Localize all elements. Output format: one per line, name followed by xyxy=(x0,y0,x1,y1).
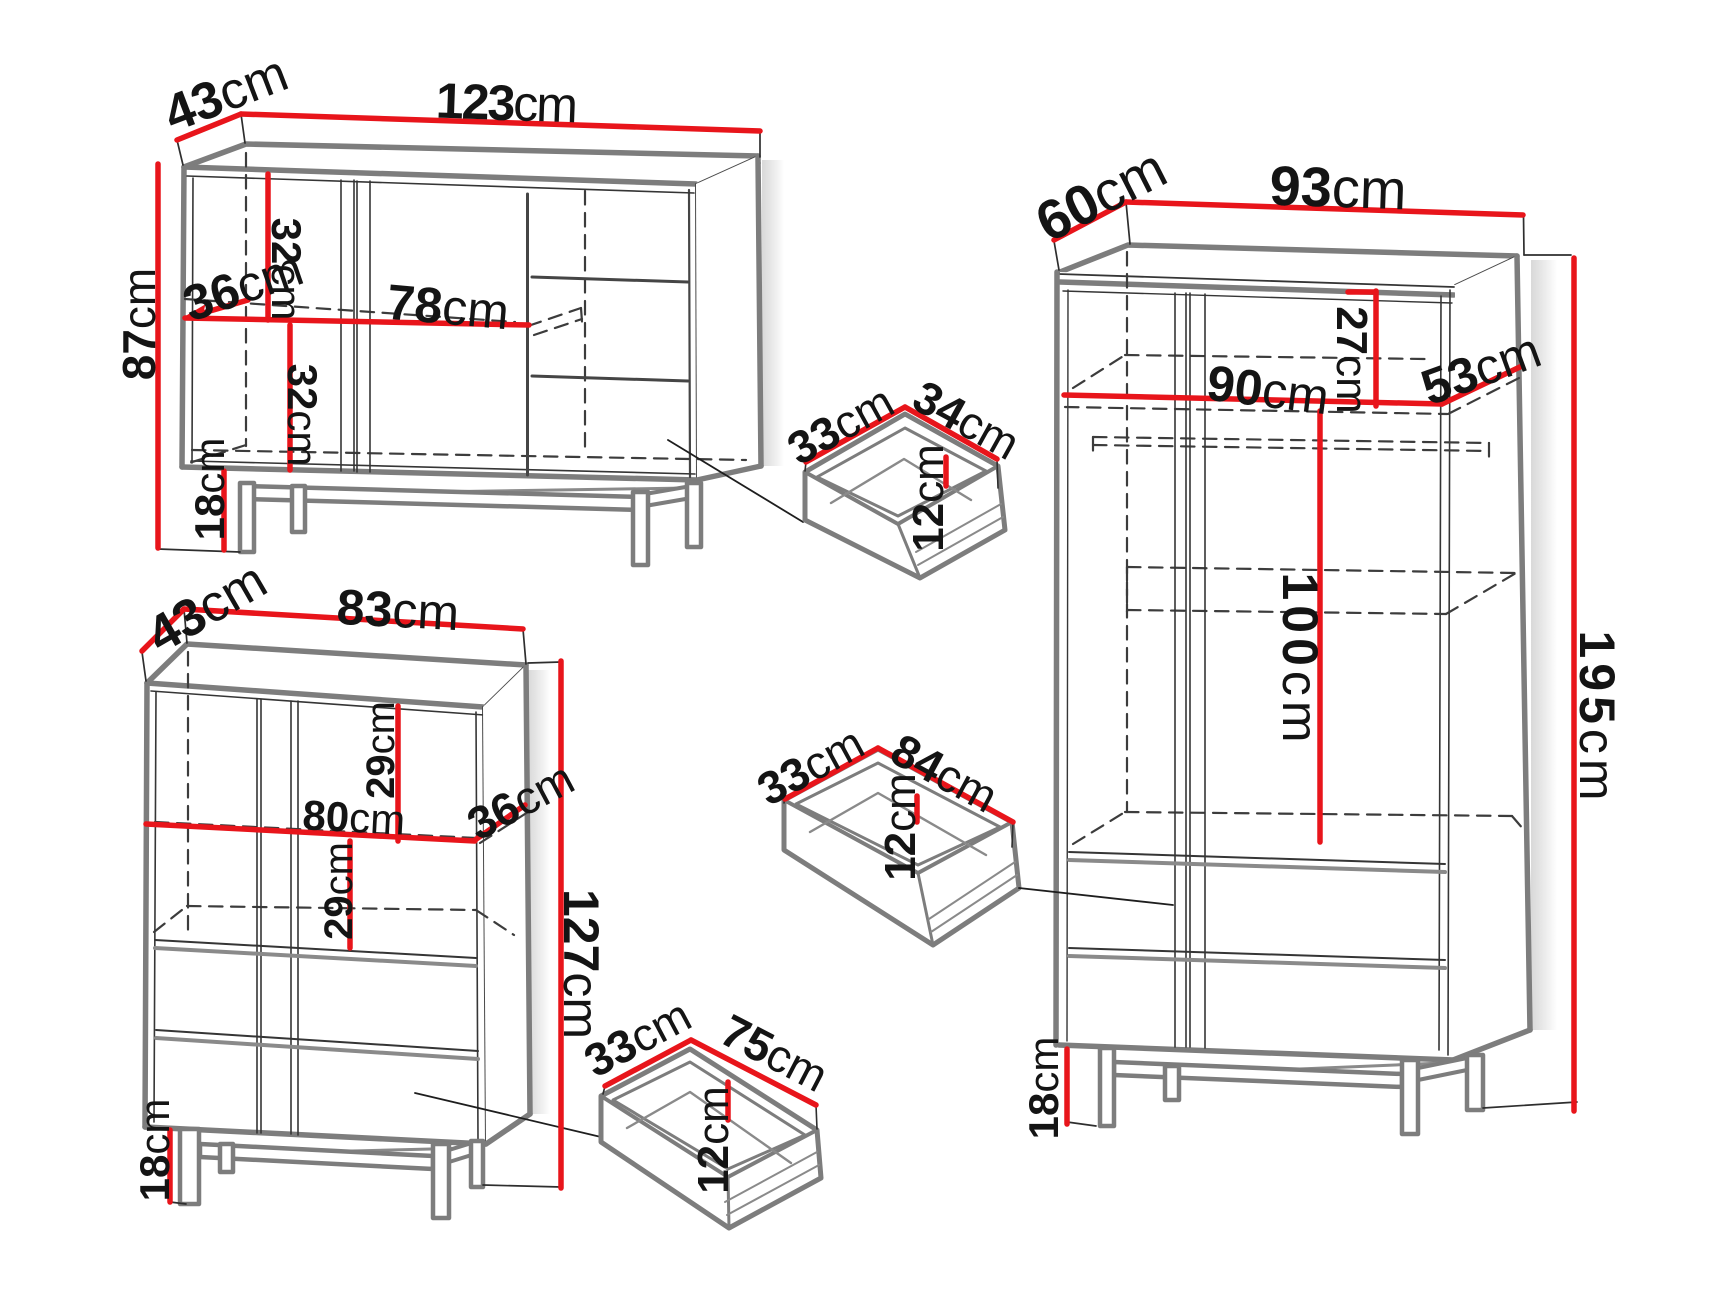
svg-text:93cm: 93cm xyxy=(1269,154,1408,222)
svg-text:12cm: 12cm xyxy=(904,444,953,552)
svg-text:83cm: 83cm xyxy=(335,579,460,641)
svg-text:32cm: 32cm xyxy=(263,218,310,321)
svg-text:29cm: 29cm xyxy=(359,701,403,799)
svg-text:12cm: 12cm xyxy=(689,1086,738,1194)
svg-text:18cm: 18cm xyxy=(186,438,233,541)
svg-text:18cm: 18cm xyxy=(1020,1037,1067,1140)
svg-text:80cm: 80cm xyxy=(301,791,406,843)
svg-text:195cm: 195cm xyxy=(1569,630,1625,805)
svg-text:87cm: 87cm xyxy=(113,268,165,381)
svg-text:12cm: 12cm xyxy=(876,773,925,881)
svg-text:123cm: 123cm xyxy=(435,73,577,134)
svg-text:32cm: 32cm xyxy=(279,364,326,467)
svg-text:29cm: 29cm xyxy=(317,842,361,940)
svg-text:18cm: 18cm xyxy=(131,1099,178,1202)
svg-text:78cm: 78cm xyxy=(385,274,512,340)
svg-text:127cm: 127cm xyxy=(553,889,609,1039)
svg-text:100cm: 100cm xyxy=(1272,572,1328,747)
svg-text:27cm: 27cm xyxy=(1327,306,1376,414)
